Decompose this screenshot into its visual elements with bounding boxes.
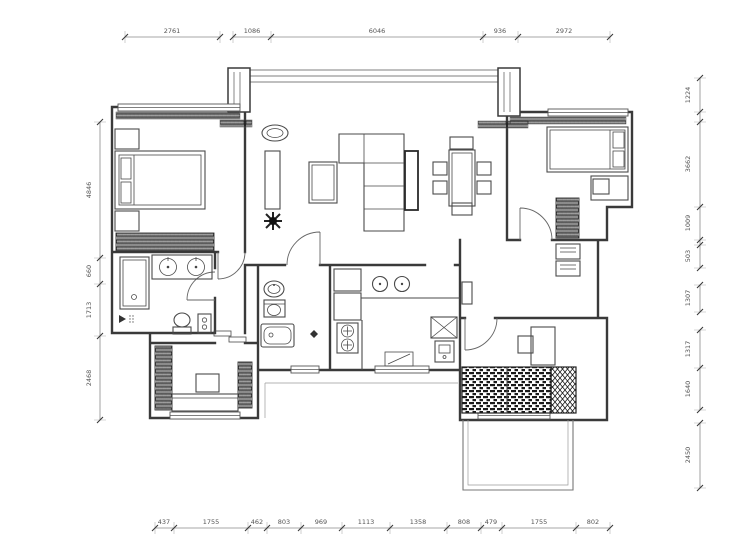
cabinet bbox=[334, 269, 361, 291]
cabinet bbox=[462, 282, 472, 304]
floor-plan-canvas: 2761 1086 6046 936 2972 437 1755 462 803… bbox=[0, 0, 740, 550]
pillow-strip bbox=[551, 367, 576, 413]
doors bbox=[187, 208, 552, 366]
wardrobe bbox=[155, 346, 172, 410]
dim-label: 6046 bbox=[369, 27, 386, 35]
bathtub bbox=[261, 324, 294, 347]
dim-label: 660 bbox=[85, 265, 93, 277]
bedroom-3 bbox=[462, 327, 576, 413]
dim-label: 437 bbox=[158, 518, 170, 526]
hatch-band bbox=[510, 117, 626, 124]
study-room bbox=[155, 346, 252, 411]
stove bbox=[337, 320, 362, 370]
dim-label: 1640 bbox=[684, 381, 692, 398]
dim-label: 2468 bbox=[85, 370, 93, 387]
wardrobe bbox=[238, 362, 252, 408]
dim-label: 808 bbox=[458, 518, 470, 526]
dimensions-right: 1224 3662 1009 503 1307 1317 1640 2450 bbox=[684, 75, 706, 491]
nightstand bbox=[115, 129, 139, 149]
sofa-l-shaped bbox=[339, 134, 404, 231]
cabinet bbox=[334, 293, 361, 320]
desk-and-chair bbox=[518, 327, 555, 365]
bed bbox=[547, 127, 628, 172]
dim-label: 462 bbox=[251, 518, 263, 526]
dim-label: 1755 bbox=[531, 518, 548, 526]
tv-cabinet bbox=[405, 151, 418, 210]
dim-label: 803 bbox=[278, 518, 290, 526]
window-bedroom-2 bbox=[548, 109, 628, 116]
sink bbox=[264, 281, 284, 297]
console-cabinet bbox=[265, 151, 280, 209]
dim-label: 1317 bbox=[684, 341, 692, 358]
dim-label: 1224 bbox=[684, 87, 692, 104]
wardrobe bbox=[116, 233, 214, 251]
hatch-band bbox=[220, 120, 252, 127]
window-master-bedroom bbox=[118, 104, 240, 111]
terrace-edge bbox=[265, 383, 458, 418]
side-table bbox=[196, 374, 219, 392]
dim-label: 1358 bbox=[410, 518, 427, 526]
dining-chair bbox=[477, 162, 491, 175]
sliding-door-study bbox=[214, 331, 246, 342]
bay-window bbox=[228, 68, 520, 116]
cabinet bbox=[556, 244, 580, 259]
entry-table bbox=[262, 125, 288, 141]
floor-drain-icon bbox=[310, 330, 318, 338]
bathroom-2 bbox=[261, 281, 318, 347]
flue-duct bbox=[431, 317, 457, 338]
bay-window-pier-right bbox=[498, 68, 520, 116]
master-bathroom bbox=[119, 255, 212, 334]
dim-label: 802 bbox=[587, 518, 599, 526]
hatch-band bbox=[116, 112, 240, 119]
dim-label: 1086 bbox=[244, 27, 261, 35]
dim-label: 1113 bbox=[358, 518, 375, 526]
door-master-bedroom bbox=[218, 252, 245, 279]
plant-icon bbox=[264, 212, 282, 230]
dining-area bbox=[433, 137, 491, 215]
bedroom-2 bbox=[547, 127, 628, 238]
dim-label: 2450 bbox=[684, 447, 692, 464]
desk-and-chair bbox=[591, 176, 628, 200]
dining-chair bbox=[477, 181, 491, 194]
dim-label: 3662 bbox=[684, 156, 692, 173]
door-kitchen-service bbox=[385, 352, 413, 366]
floor-plan-drawing: 2761 1086 6046 936 2972 437 1755 462 803… bbox=[0, 0, 740, 550]
double-bed bbox=[115, 151, 205, 209]
dim-label: 936 bbox=[494, 27, 506, 35]
water-heater bbox=[435, 341, 454, 362]
cabinet bbox=[556, 261, 580, 276]
dim-label: 1713 bbox=[85, 302, 93, 319]
dining-chair bbox=[452, 203, 472, 215]
desk-bench bbox=[172, 394, 238, 411]
dining-chair bbox=[433, 181, 447, 194]
door-bedroom-3 bbox=[465, 318, 497, 350]
dim-label: 1755 bbox=[203, 518, 220, 526]
toilet bbox=[173, 313, 191, 334]
master-bedroom bbox=[115, 129, 214, 251]
window-study bbox=[170, 412, 240, 419]
dimensions-bottom: 437 1755 462 803 969 1113 1358 808 479 1… bbox=[152, 518, 613, 534]
double-vanity bbox=[152, 255, 212, 279]
bay-window-glass-lines bbox=[250, 70, 498, 82]
living-room bbox=[262, 125, 418, 231]
coffee-table bbox=[309, 162, 337, 203]
dimensions-left: 4846 660 1713 2468 bbox=[85, 119, 106, 423]
window-kitchen bbox=[375, 366, 429, 373]
dim-label: 2761 bbox=[164, 27, 181, 35]
hallway-cabinets bbox=[462, 244, 580, 304]
dim-label: 2972 bbox=[556, 27, 573, 35]
door-bedroom-2 bbox=[520, 208, 552, 240]
dining-chair bbox=[450, 137, 473, 149]
window-bathroom-2 bbox=[291, 366, 319, 373]
kitchen bbox=[334, 269, 460, 370]
shower-head-icon bbox=[119, 315, 134, 323]
washing-machine bbox=[198, 314, 211, 333]
dim-label: 1009 bbox=[684, 215, 692, 232]
kitchen-sink-counter bbox=[361, 277, 460, 299]
dim-label: 969 bbox=[315, 518, 327, 526]
dining-chair bbox=[433, 162, 447, 175]
tatami-bed bbox=[462, 367, 576, 413]
shower bbox=[120, 257, 149, 309]
dim-label: 479 bbox=[485, 518, 497, 526]
toilet bbox=[264, 300, 285, 317]
dining-table bbox=[449, 150, 475, 206]
dim-label: 4846 bbox=[85, 182, 93, 199]
door-bathroom-2 bbox=[287, 232, 320, 265]
balcony bbox=[463, 420, 573, 490]
nightstand bbox=[115, 211, 139, 231]
door-master-bathroom bbox=[187, 272, 215, 300]
dimensions-top: 2761 1086 6046 936 2972 bbox=[122, 27, 613, 43]
wardrobe bbox=[556, 198, 579, 238]
dim-label: 1307 bbox=[684, 290, 692, 307]
dim-label: 503 bbox=[684, 250, 692, 262]
